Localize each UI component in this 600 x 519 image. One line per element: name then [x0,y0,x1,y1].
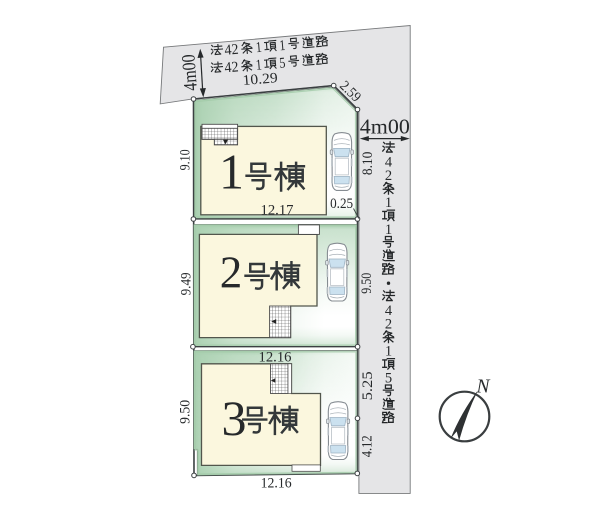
svg-text:42: 42 [224,42,239,59]
svg-text:9.50: 9.50 [178,400,194,424]
svg-text:4m00: 4m00 [360,115,410,139]
svg-text:9.10: 9.10 [178,149,194,170]
svg-text:N: N [476,377,491,398]
svg-text:0.25: 0.25 [330,196,353,212]
svg-text:9.49: 9.49 [179,272,195,295]
svg-text:4m00: 4m00 [178,54,201,92]
svg-text:5.25: 5.25 [360,371,376,400]
svg-text:10.29: 10.29 [242,70,278,89]
svg-text:1: 1 [219,144,244,200]
svg-text:1: 1 [385,343,392,359]
svg-text:2: 2 [220,248,243,298]
svg-text:1: 1 [385,222,392,238]
svg-text:5: 5 [385,370,392,386]
svg-text:3: 3 [222,390,247,446]
svg-text:12.16: 12.16 [259,349,292,365]
svg-text:42: 42 [224,59,239,76]
svg-text:4.12: 4.12 [360,435,376,457]
svg-text:12.17: 12.17 [261,203,294,219]
svg-text:9.50: 9.50 [359,273,375,294]
svg-text:1: 1 [385,195,392,211]
svg-text:2: 2 [385,168,392,184]
svg-text:2: 2 [385,316,392,332]
svg-text:12.16: 12.16 [261,476,292,492]
svg-text:8.10: 8.10 [360,152,376,176]
